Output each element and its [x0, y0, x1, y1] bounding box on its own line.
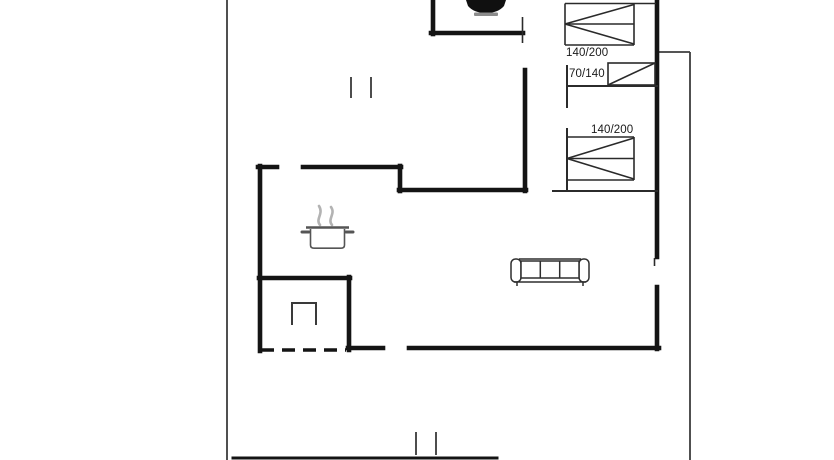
steam-icon — [318, 206, 332, 225]
window-marker-top — [351, 77, 371, 98]
sofa-arm-left — [511, 259, 521, 282]
bed-size-label: 140/200 — [591, 124, 633, 136]
floor-plan: 140/200 70/140 140/200 — [0, 0, 834, 460]
toilet-base — [474, 13, 498, 17]
sofa-seat — [521, 261, 579, 278]
bed-size-label: 140/200 — [566, 47, 608, 59]
furnace-icon — [292, 303, 316, 325]
window-marker-bottom — [416, 432, 436, 455]
pot-body — [311, 229, 345, 248]
double-bed-icon — [565, 4, 656, 46]
sofa-arm-right — [579, 259, 589, 282]
toilet-bowl — [466, 0, 506, 13]
toilet-icon — [466, 0, 506, 16]
bed-size-label: 70/140 — [569, 68, 605, 80]
cooking-pot-icon — [302, 228, 353, 249]
sofa-icon — [511, 259, 589, 286]
boundary-lines — [227, 0, 690, 460]
double-bed-icon — [567, 137, 634, 180]
cot-bed-icon — [608, 63, 655, 85]
floor-plan-drawing — [0, 0, 834, 460]
